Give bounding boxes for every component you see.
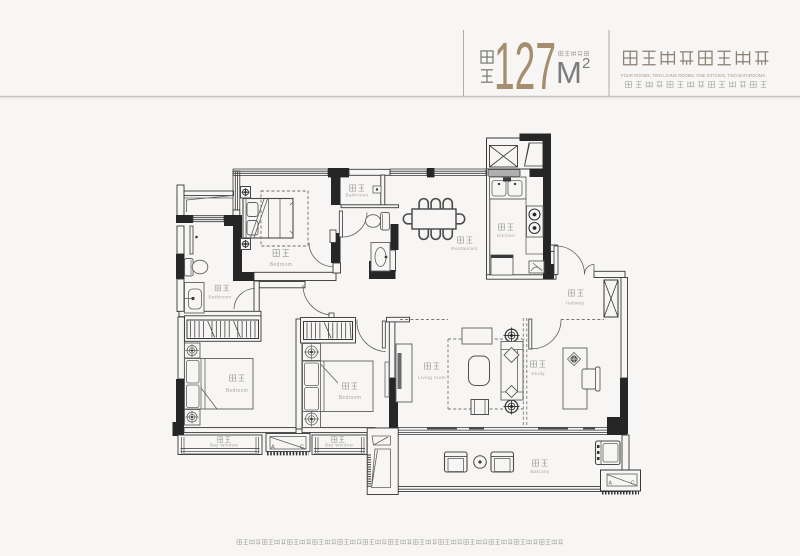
- svg-text:Bay Window: Bay Window: [325, 443, 353, 448]
- svg-text:Bedroom: Bedroom: [339, 395, 361, 401]
- svg-text:127: 127: [494, 29, 556, 104]
- svg-text:Hallway: Hallway: [566, 301, 585, 307]
- svg-text:C: C: [631, 481, 635, 487]
- svg-text:2: 2: [582, 55, 590, 72]
- svg-text:Balcony: Balcony: [530, 469, 549, 475]
- svg-text:Bathroom: Bathroom: [345, 193, 368, 199]
- svg-text:FOUR ROOMS, TWO LIVING ROOMS,: FOUR ROOMS, TWO LIVING ROOMS, ONE KITCHE…: [621, 73, 765, 79]
- svg-text:Restaurant: Restaurant: [451, 246, 478, 252]
- svg-text:Bedroom: Bedroom: [226, 388, 248, 394]
- svg-text:Bay Window: Bay Window: [210, 443, 238, 448]
- svg-text:Bathroom: Bathroom: [208, 295, 231, 301]
- svg-text:Living room: Living room: [418, 375, 446, 381]
- svg-text:M: M: [556, 55, 582, 90]
- svg-text:Bedroom: Bedroom: [270, 262, 292, 268]
- svg-text:Study: Study: [531, 371, 545, 377]
- svg-text:C: C: [300, 445, 304, 451]
- svg-text:Kitchen: Kitchen: [497, 233, 515, 239]
- svg-text:A: A: [271, 445, 275, 451]
